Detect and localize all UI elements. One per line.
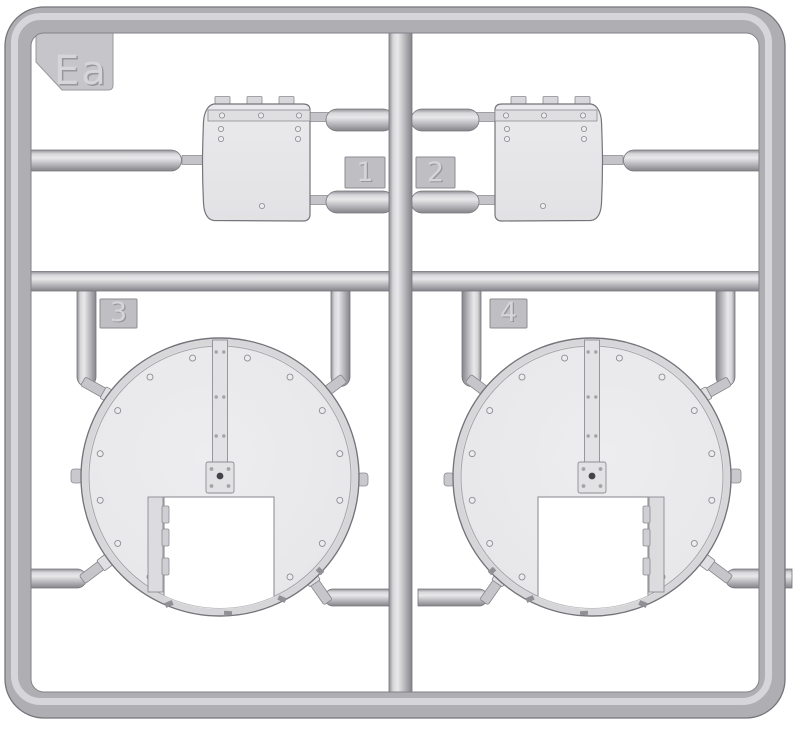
part-number-tag-2: 2 2 bbox=[416, 157, 455, 189]
tag-3-number: 3 bbox=[110, 297, 127, 328]
part-4-disc bbox=[418, 282, 792, 622]
part-number-tag-4: 4 4 bbox=[490, 297, 527, 329]
tag-2-number: 2 bbox=[427, 157, 444, 188]
sprue-drawing: 1 1 2 2 3 3 4 4 Ea Ea bbox=[0, 0, 800, 733]
sprue-ea-image: 1 1 2 2 3 3 4 4 Ea Ea bbox=[0, 0, 800, 733]
sprue-letter: Ea bbox=[54, 48, 108, 94]
tag-4-number: 4 bbox=[500, 297, 517, 328]
part-2-plate bbox=[411, 97, 781, 222]
part-number-tag-1: 1 1 bbox=[345, 157, 385, 189]
part-number-tag-3: 3 3 bbox=[100, 297, 137, 329]
part-3-disc bbox=[20, 282, 394, 622]
central-vertical-runner bbox=[389, 22, 412, 702]
sprue-letter-label: Ea Ea bbox=[54, 48, 109, 96]
tag-1-number: 1 bbox=[356, 157, 373, 188]
part-1-plate bbox=[24, 97, 394, 222]
